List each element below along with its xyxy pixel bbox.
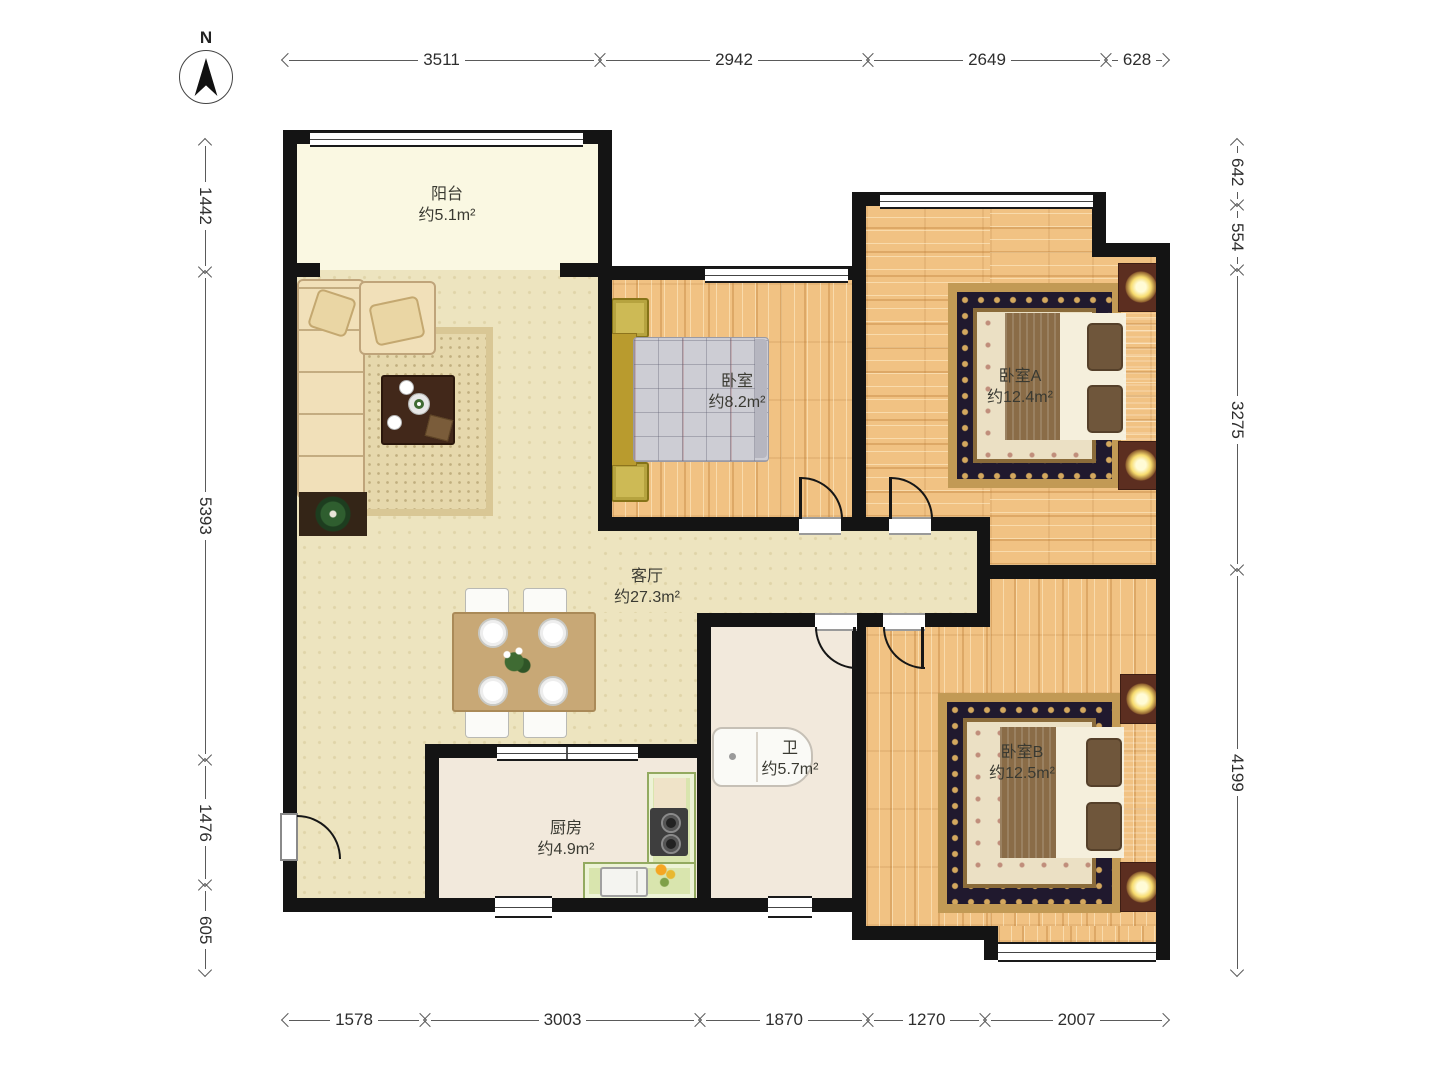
compass: N: [176, 28, 236, 104]
room-name: 阳台: [419, 185, 476, 206]
wall: [283, 130, 297, 815]
wall: [841, 517, 889, 531]
lamp: [1125, 271, 1157, 303]
kitchen-flowers: [652, 862, 678, 888]
room-name: 卧室: [709, 372, 766, 393]
wall: [852, 926, 998, 940]
dim-value: 1442: [195, 182, 215, 230]
dimension-top-1: 3511: [283, 51, 600, 69]
dim-line: [706, 1020, 760, 1021]
wall: [425, 744, 439, 898]
room-name: 卫: [762, 739, 819, 760]
dimension-top-2: 2942: [600, 51, 868, 69]
compass-north-label: N: [176, 28, 236, 48]
dim-value: 3511: [418, 50, 465, 70]
entry-door-leaf: [280, 813, 298, 861]
dim-arrow: [1104, 53, 1118, 67]
room-area: 约27.3m²: [614, 588, 680, 609]
dim-arrow: [281, 1013, 295, 1027]
bed-pillow: [1087, 323, 1123, 371]
nightstand: [611, 462, 649, 502]
stove-burner: [661, 834, 681, 854]
room-name: 卧室B: [989, 743, 1055, 764]
teacup: [387, 415, 402, 430]
dim-line: [465, 60, 594, 61]
dim-arrow: [198, 758, 212, 772]
table-flowers: [495, 642, 535, 678]
dimension-bottom-3: 1870: [700, 1011, 868, 1029]
dim-arrow: [1230, 963, 1244, 977]
dim-arrow: [1230, 268, 1244, 282]
dim-arrow: [1156, 53, 1170, 67]
dim-value: 2007: [1053, 1010, 1101, 1030]
dim-line: [1011, 60, 1100, 61]
window-mullion: [566, 747, 568, 759]
dimension-right-2: 554: [1228, 205, 1246, 270]
dim-arrow: [983, 1013, 997, 1027]
bathroom-window: [768, 896, 812, 918]
bed-headboard: [1123, 313, 1156, 440]
dimension-top-3: 2649: [868, 51, 1106, 69]
countertop: [654, 778, 686, 808]
room-area: 约12.5m²: [989, 764, 1055, 785]
dim-value: 3275: [1227, 396, 1247, 444]
dim-value: 4199: [1227, 749, 1247, 797]
wall: [598, 517, 799, 531]
dim-arrow: [866, 53, 880, 67]
compass-ring: [179, 50, 233, 104]
wall: [990, 565, 1156, 579]
bedroom-b-bay-floor: [998, 926, 1156, 942]
dim-line: [1237, 276, 1238, 396]
wall: [697, 613, 815, 627]
dim-line: [289, 60, 418, 61]
dim-arrow: [423, 1013, 437, 1027]
dim-arrow: [198, 883, 212, 897]
kitchen-sink: [600, 867, 648, 897]
room-label-kitchen: 厨房 约4.9m²: [538, 819, 595, 861]
dimension-bottom-1: 1578: [283, 1011, 425, 1029]
dimension-top-4: 628: [1106, 51, 1168, 69]
bed-pillow: [1086, 802, 1122, 851]
bathtub-divider: [756, 732, 758, 782]
dim-line: [1237, 796, 1238, 969]
potted-plant: [310, 492, 356, 536]
room-label-bathroom: 卫 约5.7m²: [762, 739, 819, 781]
dim-value: 2942: [710, 50, 758, 70]
dim-line: [1100, 1020, 1162, 1021]
door-sill: [799, 517, 841, 535]
bedroom-b-window: [998, 942, 1156, 962]
room-label-bedroom-a: 卧室A 约12.4m²: [987, 367, 1053, 409]
dim-arrow: [281, 53, 295, 67]
dimension-left-2: 5393: [196, 272, 214, 760]
room-name: 卧室A: [987, 367, 1053, 388]
wall: [1156, 243, 1170, 960]
dimension-left-4: 605: [196, 885, 214, 975]
dim-arrow: [698, 1013, 712, 1027]
dimension-bottom-4: 1270: [868, 1011, 985, 1029]
wall: [925, 613, 990, 627]
stove-burner: [661, 813, 681, 833]
dim-arrow: [598, 53, 612, 67]
plate: [538, 676, 568, 706]
plate: [538, 618, 568, 648]
bathtub-drain: [729, 753, 736, 760]
wall: [852, 192, 866, 531]
balcony-window: [310, 131, 583, 147]
dim-value: 3003: [539, 1010, 587, 1030]
door-sill: [889, 517, 931, 535]
room-area: 约5.7m²: [762, 760, 819, 781]
dim-value: 2649: [963, 50, 1011, 70]
room-area: 约4.9m²: [538, 840, 595, 861]
north-arrow-icon: [191, 58, 221, 96]
plate: [478, 676, 508, 706]
dim-arrow: [1230, 568, 1244, 582]
dim-value: 1476: [195, 799, 215, 847]
dim-line: [1237, 444, 1238, 564]
dim-line: [1237, 576, 1238, 749]
wall: [598, 130, 612, 531]
dining-nook-floor: [598, 613, 697, 744]
wall: [931, 517, 990, 531]
dimension-right-1: 642: [1228, 140, 1246, 205]
dim-value: 554: [1227, 218, 1247, 256]
bedroom-window: [705, 267, 848, 283]
dim-line: [808, 1020, 862, 1021]
wall: [283, 263, 320, 277]
kitchen-window: [495, 896, 552, 918]
dim-line: [874, 60, 963, 61]
room-label-bedroom: 卧室 约8.2m²: [709, 372, 766, 414]
room-area: 约5.1m²: [419, 206, 476, 227]
dim-line: [586, 1020, 694, 1021]
dim-arrow: [198, 963, 212, 977]
sink-divider: [636, 871, 638, 893]
dimension-right-4: 4199: [1228, 570, 1246, 975]
room-name: 客厅: [614, 567, 680, 588]
dim-value: 628: [1118, 50, 1156, 70]
dim-value: 642: [1227, 153, 1247, 191]
dim-line: [606, 60, 710, 61]
bed-pillow: [1087, 385, 1123, 433]
dim-arrow: [1230, 138, 1244, 152]
dimension-left-3: 1476: [196, 760, 214, 885]
teacup: [399, 380, 414, 395]
bed-headboard: [1122, 727, 1156, 858]
dim-line: [991, 1020, 1053, 1021]
dimension-right-3: 3275: [1228, 270, 1246, 570]
dim-value: 1270: [903, 1010, 951, 1030]
nightstand: [611, 298, 649, 338]
lamp: [1126, 871, 1158, 903]
bedroom-a-window: [880, 193, 1093, 209]
floor-plan: N: [0, 0, 1440, 1080]
dimension-bottom-5: 2007: [985, 1011, 1168, 1029]
lamp: [1125, 449, 1157, 481]
dim-arrow: [1230, 203, 1244, 217]
wall: [984, 926, 998, 960]
room-label-living-room: 客厅 约27.3m²: [614, 567, 680, 609]
kitchen-pass-window: [497, 745, 638, 761]
dim-value: 1578: [330, 1010, 378, 1030]
dim-value: 1870: [760, 1010, 808, 1030]
room-label-bedroom-b: 卧室B 约12.5m²: [989, 743, 1055, 785]
stove: [650, 808, 688, 856]
teacup: [408, 393, 430, 415]
lamp: [1126, 683, 1158, 715]
room-area: 约12.4m²: [987, 388, 1053, 409]
dim-line: [205, 278, 206, 492]
dim-line: [758, 60, 862, 61]
dim-value: 605: [195, 911, 215, 949]
room-area: 约8.2m²: [709, 393, 766, 414]
dim-arrow: [1156, 1013, 1170, 1027]
dim-line: [431, 1020, 539, 1021]
room-label-balcony: 阳台 约5.1m²: [419, 185, 476, 227]
dim-arrow: [866, 1013, 880, 1027]
dimension-left-1: 1442: [196, 140, 214, 272]
dim-value: 5393: [195, 492, 215, 540]
dimension-bottom-2: 3003: [425, 1011, 700, 1029]
dim-arrow: [198, 138, 212, 152]
wall: [977, 531, 990, 613]
dim-line: [205, 540, 206, 754]
bed-pillow: [1086, 738, 1122, 787]
room-name: 厨房: [538, 819, 595, 840]
wall: [697, 613, 711, 898]
dim-arrow: [198, 270, 212, 284]
